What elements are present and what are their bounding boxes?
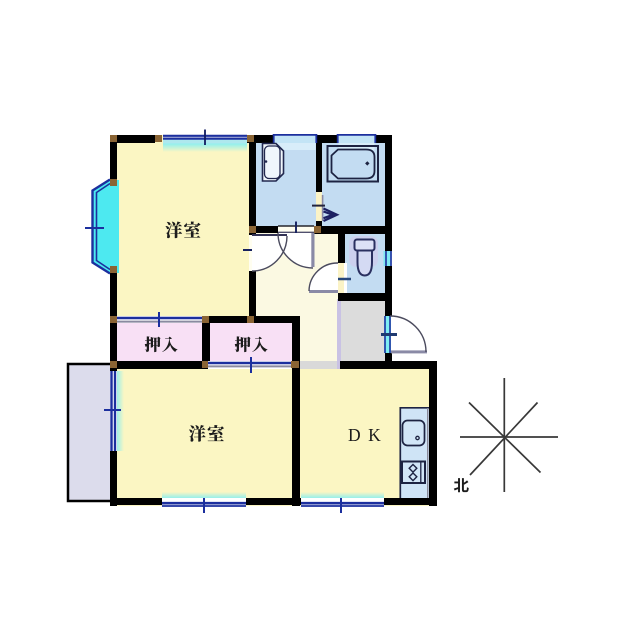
svg-text:DK: DK: [348, 425, 388, 445]
